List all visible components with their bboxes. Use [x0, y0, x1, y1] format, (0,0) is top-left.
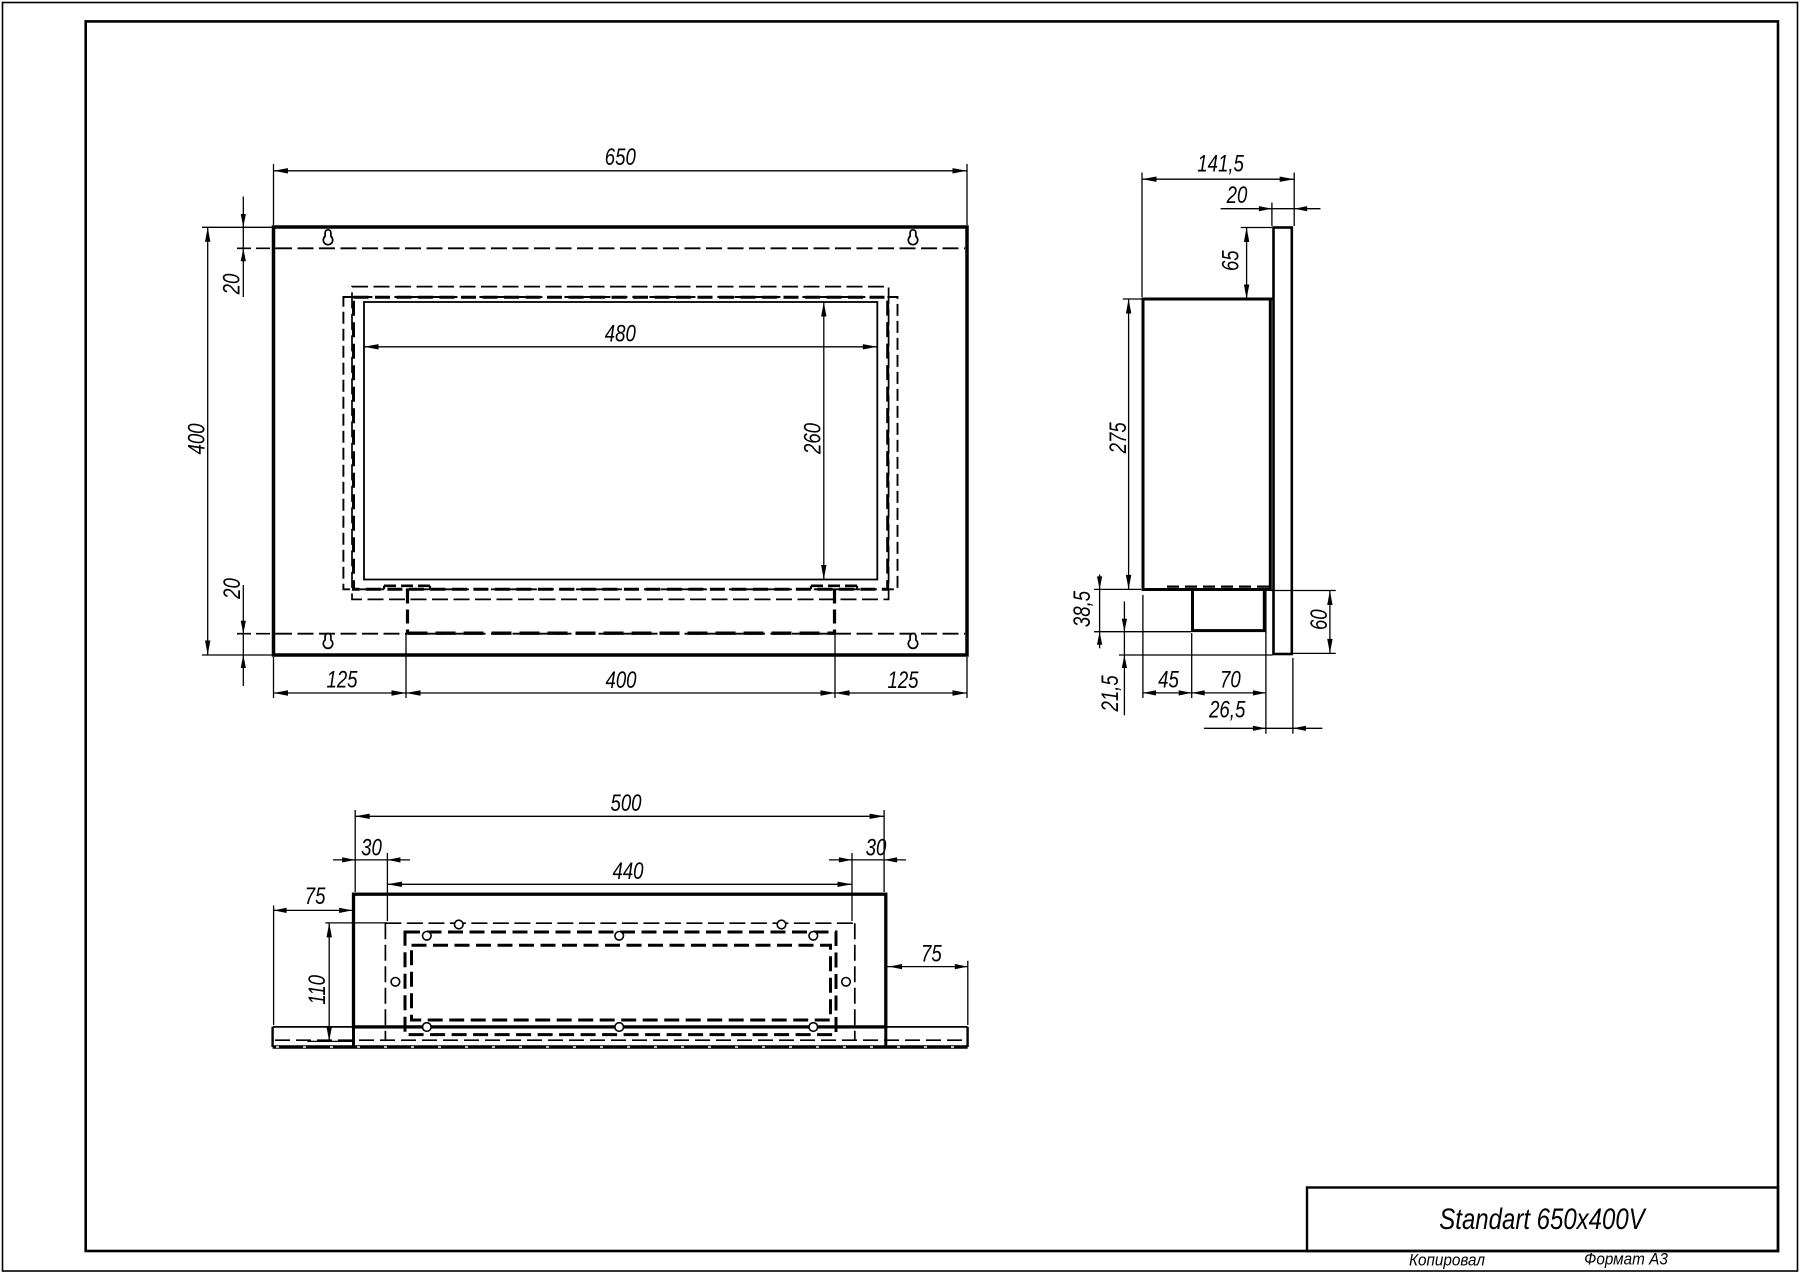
- svg-text:400: 400: [605, 665, 636, 693]
- svg-text:650: 650: [605, 142, 636, 170]
- svg-text:21,5: 21,5: [1095, 675, 1123, 713]
- svg-text:400: 400: [182, 423, 210, 454]
- svg-text:110: 110: [303, 975, 331, 1005]
- svg-text:141,5: 141,5: [1197, 149, 1244, 177]
- svg-text:30: 30: [361, 833, 382, 861]
- svg-text:260: 260: [798, 423, 826, 455]
- svg-text:75: 75: [921, 939, 942, 967]
- svg-text:45: 45: [1158, 665, 1179, 693]
- svg-text:480: 480: [605, 319, 636, 347]
- svg-text:Копировал: Копировал: [1409, 1251, 1485, 1270]
- svg-text:30: 30: [866, 833, 887, 861]
- svg-text:20: 20: [1226, 180, 1248, 208]
- svg-text:125: 125: [326, 665, 358, 693]
- svg-text:38,5: 38,5: [1068, 590, 1096, 627]
- svg-text:20: 20: [217, 578, 245, 600]
- svg-text:125: 125: [887, 665, 919, 693]
- svg-text:26,5: 26,5: [1208, 695, 1246, 723]
- svg-text:60: 60: [1304, 609, 1332, 630]
- svg-text:440: 440: [612, 856, 643, 884]
- svg-text:275: 275: [1104, 422, 1132, 455]
- svg-text:Формат A3: Формат A3: [1584, 1250, 1668, 1269]
- svg-text:500: 500: [610, 788, 641, 816]
- svg-text:65: 65: [1216, 250, 1244, 271]
- svg-text:70: 70: [1220, 665, 1241, 693]
- svg-text:20: 20: [217, 274, 245, 296]
- svg-text:75: 75: [305, 882, 326, 910]
- svg-text:Standart 650x400V: Standart 650x400V: [1439, 1201, 1647, 1235]
